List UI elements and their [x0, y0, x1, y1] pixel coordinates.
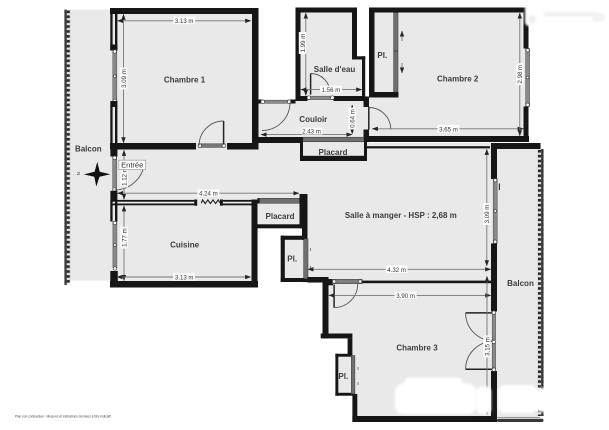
svg-text:4.24 m: 4.24 m — [199, 191, 218, 198]
svg-text:Couloir: Couloir — [299, 115, 327, 124]
svg-text:2.98 m: 2.98 m — [517, 65, 524, 84]
svg-text:Salle d'eau: Salle d'eau — [314, 65, 356, 74]
svg-text:3.90 m: 3.90 m — [396, 293, 415, 300]
svg-text:4.32 m: 4.32 m — [387, 267, 406, 274]
svg-text:Cuisine: Cuisine — [170, 241, 199, 250]
svg-text:3.65 m: 3.65 m — [439, 126, 458, 133]
svg-text:Balcon: Balcon — [507, 279, 534, 288]
svg-text:Pl.: Pl. — [377, 51, 387, 60]
svg-text:Chambre 2: Chambre 2 — [437, 75, 479, 84]
svg-text:3.13 m: 3.13 m — [175, 18, 194, 25]
svg-text:1.77 m: 1.77 m — [121, 228, 128, 247]
svg-text:3.15 m: 3.15 m — [484, 337, 491, 356]
svg-text:Chambre 3: Chambre 3 — [396, 344, 438, 353]
svg-text:1.12 m: 1.12 m — [121, 167, 128, 186]
svg-text:Placard: Placard — [319, 148, 348, 157]
svg-text:Entrée: Entrée — [121, 161, 143, 170]
svg-text:3.09 m: 3.09 m — [484, 205, 491, 224]
svg-text:1.56 m: 1.56 m — [322, 87, 341, 94]
svg-text:Plan non contractuel - Mesures: Plan non contractuel - Mesures et indica… — [15, 414, 111, 418]
svg-text:1.99 m: 1.99 m — [300, 34, 307, 53]
svg-text:N: N — [76, 172, 81, 175]
svg-text:3.13 m: 3.13 m — [175, 274, 194, 281]
svg-text:Salle à manger - HSP : 2,68 m: Salle à manger - HSP : 2,68 m — [345, 211, 457, 220]
svg-text:0.64 m: 0.64 m — [350, 109, 357, 128]
svg-text:Pl.: Pl. — [287, 255, 297, 264]
svg-text:Pl.: Pl. — [338, 372, 348, 381]
svg-text:2.43 m: 2.43 m — [302, 128, 321, 135]
svg-text:Balcon: Balcon — [75, 144, 102, 153]
svg-text:3.09 m: 3.09 m — [121, 69, 128, 88]
svg-text:Placard: Placard — [266, 212, 295, 221]
svg-text:Chambre 1: Chambre 1 — [164, 75, 206, 84]
